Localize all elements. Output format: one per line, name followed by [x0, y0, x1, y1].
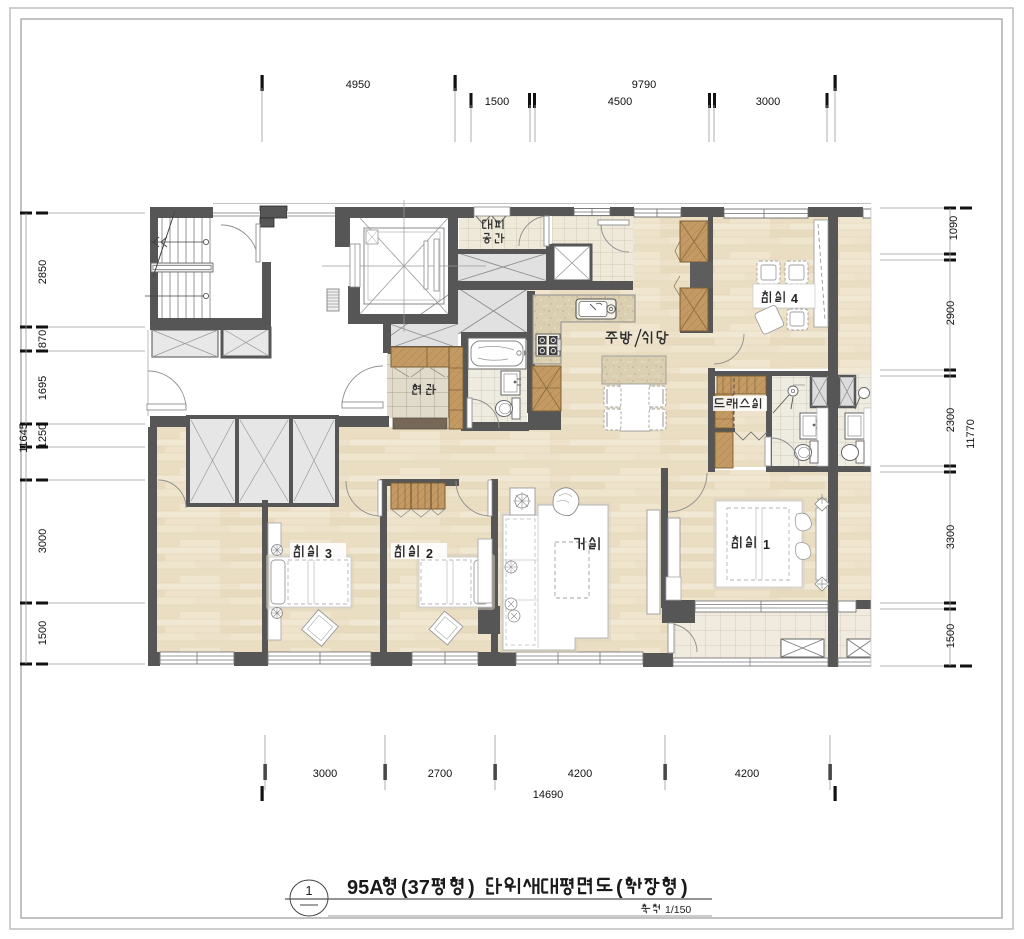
svg-text:(: (: [616, 877, 623, 899]
svg-text:3000: 3000: [313, 768, 337, 780]
svg-text:4: 4: [791, 292, 798, 306]
svg-text:1500: 1500: [485, 96, 509, 108]
svg-text:11645: 11645: [18, 423, 30, 453]
svg-text:1: 1: [763, 538, 770, 552]
svg-text:1090: 1090: [948, 216, 960, 240]
svg-text:2700: 2700: [428, 768, 452, 780]
svg-text:4200: 4200: [568, 768, 592, 780]
svg-text:9790: 9790: [632, 79, 656, 91]
svg-text:): ): [468, 877, 475, 899]
svg-text:95A: 95A: [347, 877, 384, 899]
svg-text:3000: 3000: [37, 529, 49, 553]
svg-text:3300: 3300: [945, 525, 957, 549]
svg-text:2900: 2900: [945, 301, 957, 325]
svg-text:4200: 4200: [735, 768, 759, 780]
svg-text:4500: 4500: [608, 96, 632, 108]
svg-text:1695: 1695: [37, 376, 49, 400]
svg-text:(37: (37: [401, 877, 430, 899]
svg-text:1500: 1500: [945, 624, 957, 648]
svg-text:1/150: 1/150: [665, 904, 691, 916]
svg-text:1500: 1500: [37, 621, 49, 645]
svg-text:1: 1: [305, 883, 312, 898]
svg-text:870: 870: [37, 330, 49, 348]
svg-text:14690: 14690: [533, 789, 564, 801]
svg-text:3: 3: [325, 547, 332, 561]
svg-text:): ): [681, 877, 688, 899]
svg-text:4950: 4950: [346, 79, 370, 91]
svg-text:2: 2: [426, 547, 433, 561]
svg-text:3000: 3000: [756, 96, 780, 108]
svg-text:2300: 2300: [945, 408, 957, 432]
svg-text:11770: 11770: [965, 419, 977, 449]
svg-text:2850: 2850: [37, 260, 49, 284]
svg-text:1250: 1250: [37, 424, 49, 448]
